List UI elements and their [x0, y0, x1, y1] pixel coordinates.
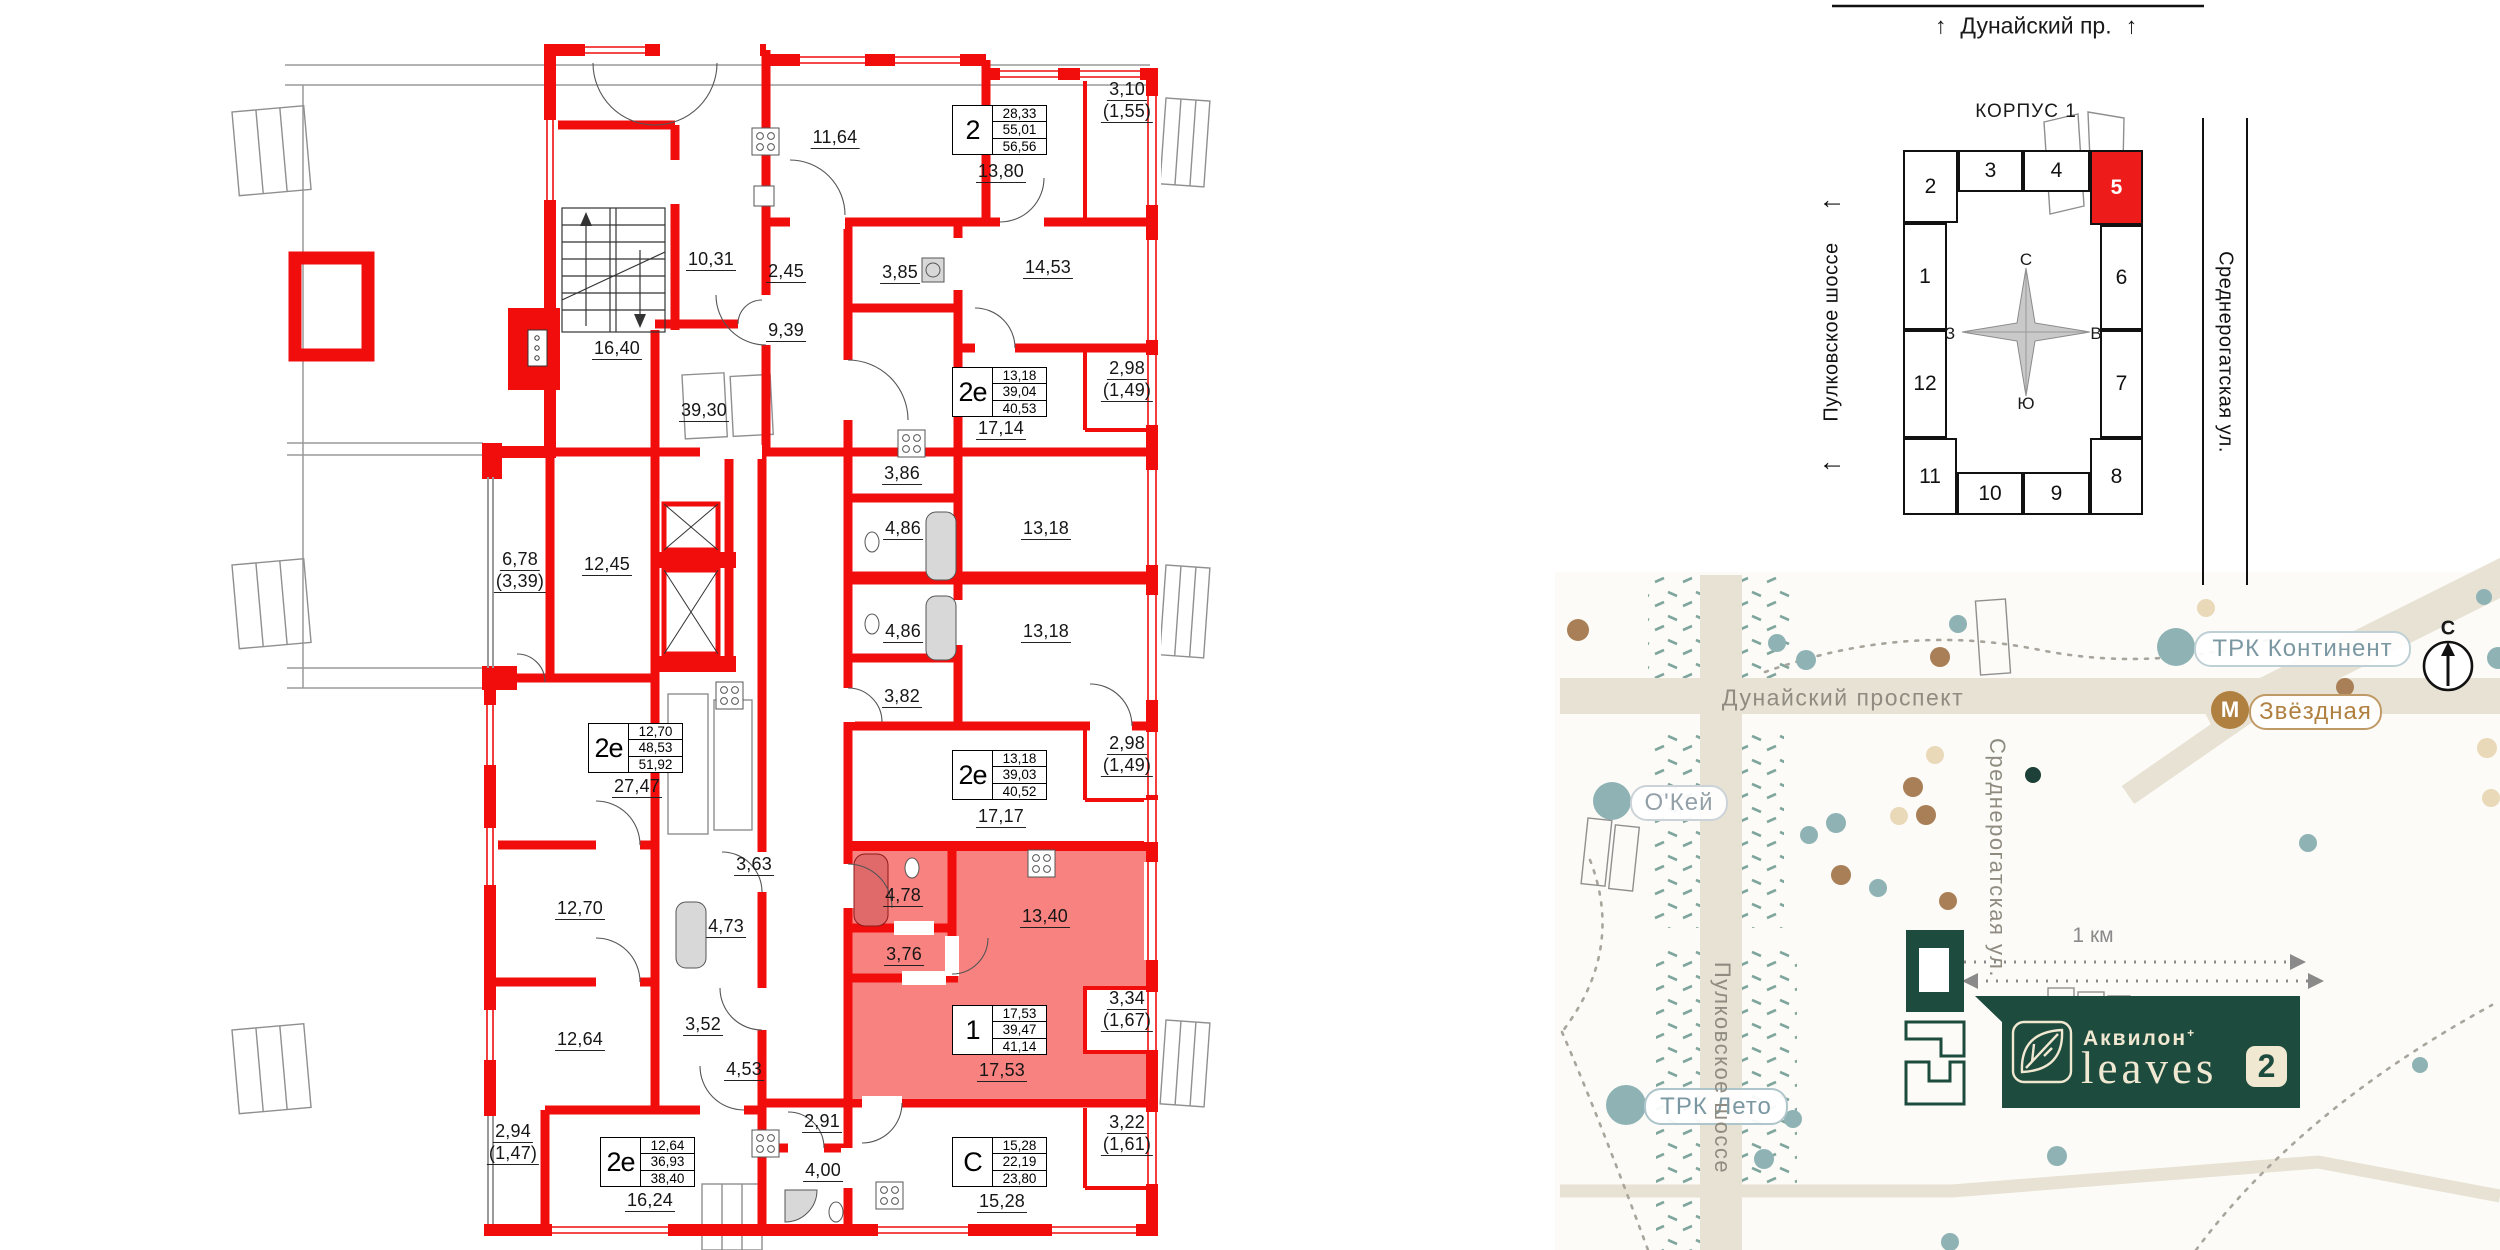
apartment-info-box[interactable]: С15,2822,1923,80 [952, 1137, 1047, 1187]
location-map [1555, 558, 2500, 1250]
map-dot [1800, 826, 1818, 844]
map-dot [1890, 807, 1908, 825]
apartment-info-box[interactable]: 2е12,6436,9338,40 [600, 1137, 695, 1187]
map-dot [2477, 738, 2497, 758]
map-dot [2412, 1057, 2428, 1073]
elevators [664, 504, 718, 654]
apartment-info-box[interactable]: 117,5339,4741,14 [952, 1005, 1047, 1055]
floor-plan [232, 43, 1210, 1250]
korpus-section-8[interactable]: 8 [2090, 438, 2143, 515]
korpus-section-2[interactable]: 2 [1903, 150, 1958, 223]
korpus-section-11[interactable]: 11 [1903, 438, 1957, 515]
map-dot [1567, 619, 1589, 641]
apartment-info-box[interactable]: 2е12,7048,5351,92 [588, 723, 683, 773]
map-dot [1831, 865, 1851, 885]
map-dot [1926, 746, 1944, 764]
apartment-type: 2 [953, 106, 993, 154]
map-dot [1930, 647, 1950, 667]
apartment-type: С [953, 1138, 993, 1186]
apartment-picker-screen: 11,6413,803,10(1,55)10,312,453,8514,5316… [0, 0, 2500, 1250]
map-dot [1784, 1110, 1802, 1128]
map-dot [1826, 813, 1846, 833]
apartment-areas: 15,2822,1923,80 [993, 1138, 1046, 1186]
map-dot [1903, 777, 1923, 797]
korpus-section-12[interactable]: 12 [1903, 330, 1947, 438]
map-dot [2482, 789, 2500, 807]
apartment-areas: 17,5339,4741,14 [993, 1006, 1046, 1054]
korpus-section-3[interactable]: 3 [1958, 150, 2023, 192]
map-dot [2047, 1146, 2067, 1166]
map-dot [1869, 879, 1887, 897]
korpus-section-9[interactable]: 9 [2023, 472, 2090, 515]
apartment-type: 2е [953, 751, 993, 799]
apartment-info-box[interactable]: 2е13,1839,0340,52 [952, 750, 1047, 800]
site-compass-star [1962, 268, 2090, 396]
stairs [562, 208, 665, 332]
map-dot [2476, 589, 2492, 605]
apartment-type: 2е [589, 724, 629, 772]
apartment-areas: 12,6436,9338,40 [641, 1138, 694, 1186]
apartment-type: 2е [953, 368, 993, 416]
map-dot [2336, 678, 2354, 696]
apartment-areas: 13,1839,0340,52 [993, 751, 1046, 799]
map-compass-icon [2424, 642, 2472, 690]
map-dot [1768, 634, 1786, 652]
apartment-areas: 28,3355,0156,56 [993, 106, 1046, 154]
map-dot [1754, 1149, 1774, 1169]
road-pulkovskoe [1700, 575, 1742, 1250]
map-dot [1796, 650, 1816, 670]
map-dot [2197, 599, 2215, 617]
apartment-type: 2е [601, 1138, 641, 1186]
map-dot [1939, 892, 1957, 910]
korpus-section-5[interactable]: 5 [2090, 150, 2143, 225]
apartment-areas: 13,1839,0440,53 [993, 368, 1046, 416]
korpus-section-7[interactable]: 7 [2100, 330, 2143, 438]
map-dot [1916, 805, 1936, 825]
korpus-section-4[interactable]: 4 [2023, 150, 2090, 192]
map-dot [2025, 767, 2041, 783]
korpus-section-6[interactable]: 6 [2100, 225, 2143, 330]
apartment-type: 1 [953, 1006, 993, 1054]
korpus-section-1[interactable]: 1 [1903, 223, 1947, 330]
map-dot [2299, 834, 2317, 852]
apartment-info-box[interactable]: 2е13,1839,0440,53 [952, 367, 1047, 417]
map-dot [1949, 615, 1967, 633]
korpus-section-10[interactable]: 10 [1957, 472, 2023, 515]
apartment-areas: 12,7048,5351,92 [629, 724, 682, 772]
apartment-info-box[interactable]: 228,3355,0156,56 [952, 105, 1047, 155]
